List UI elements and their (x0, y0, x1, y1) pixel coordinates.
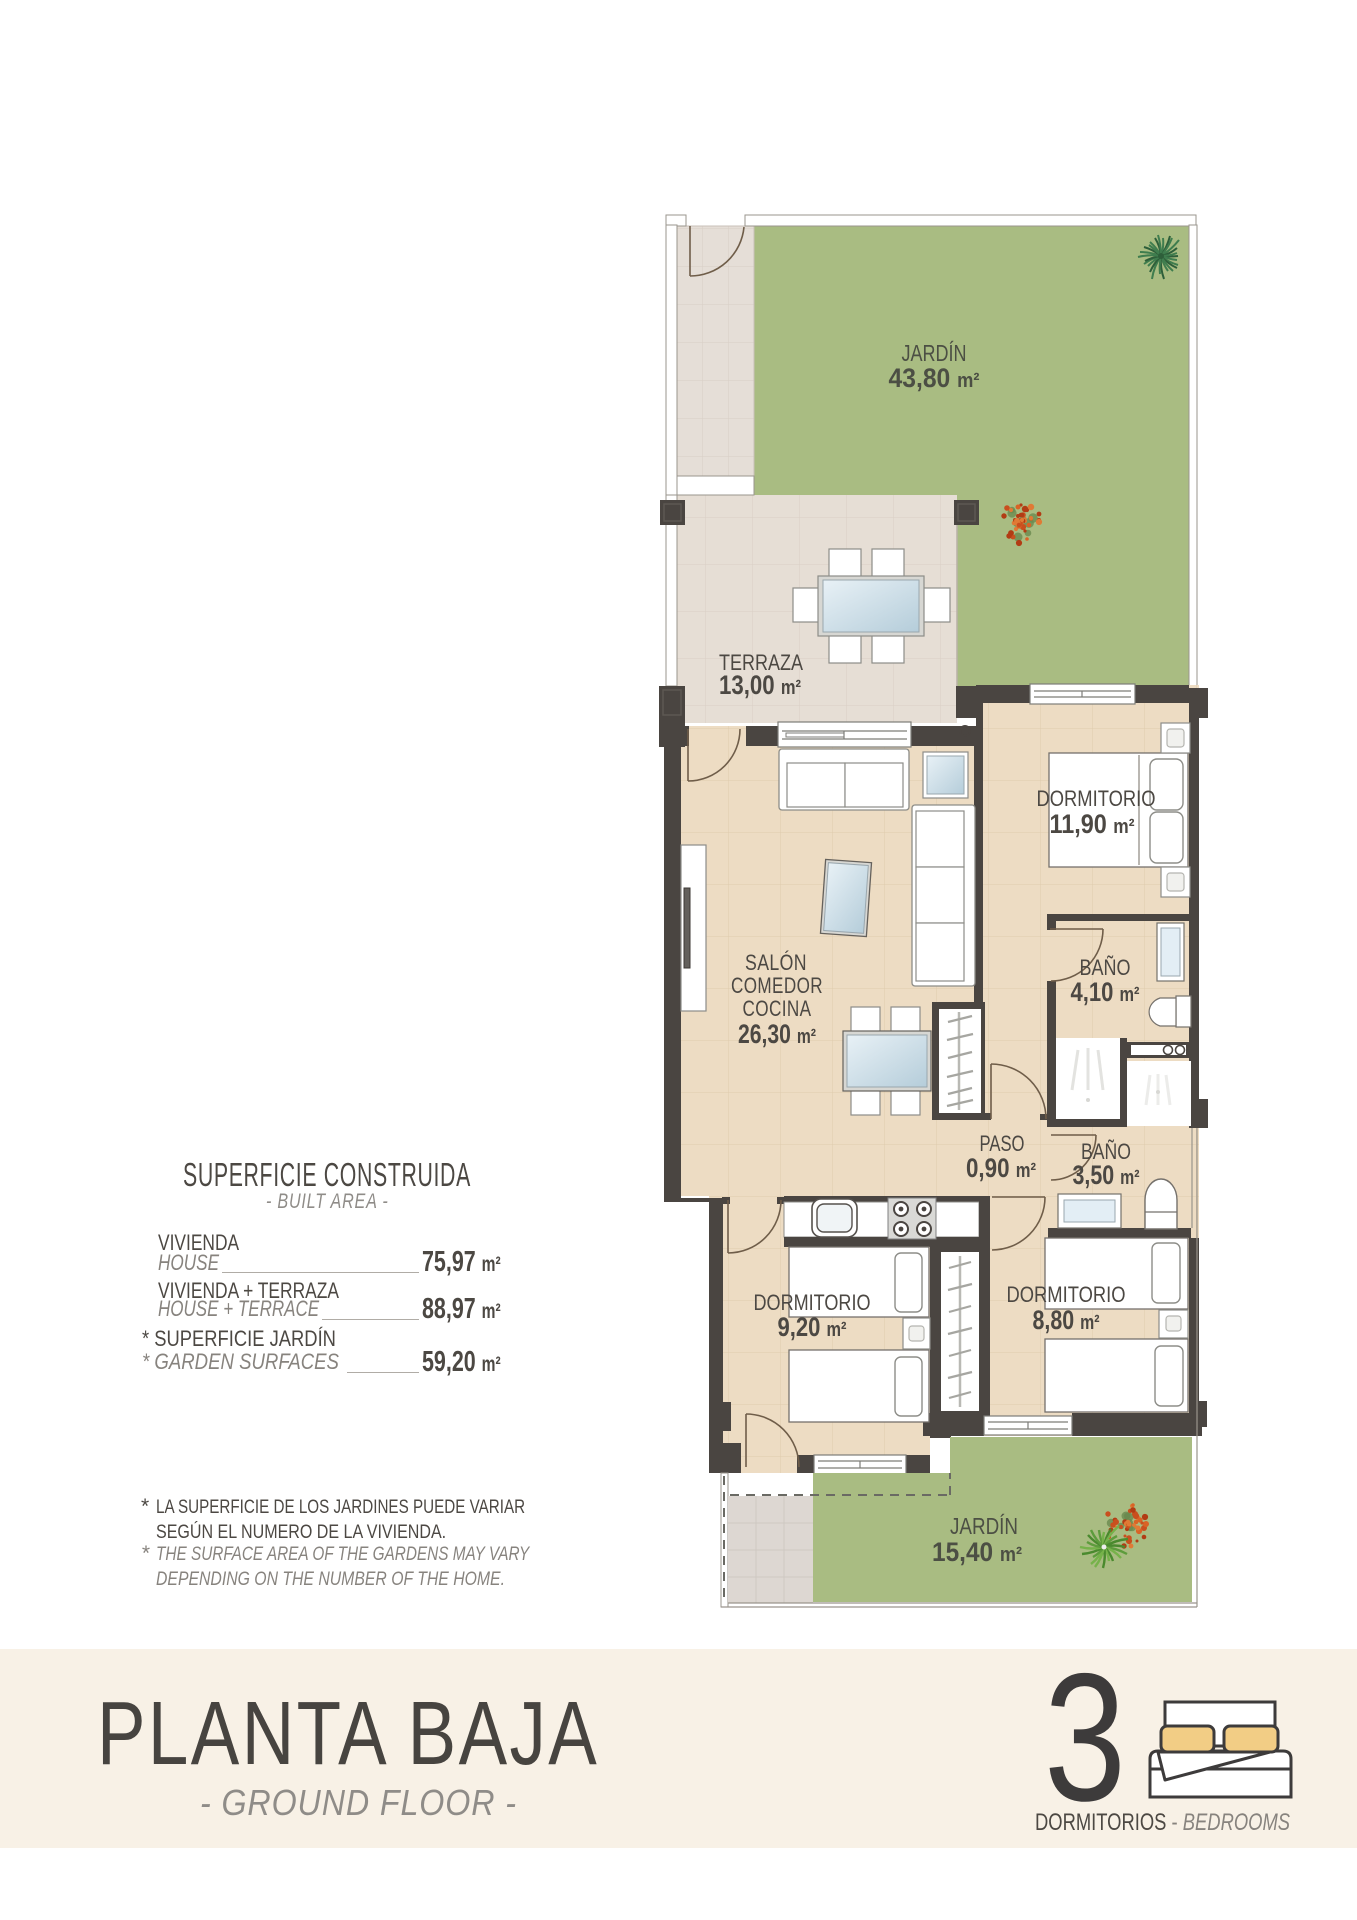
svg-text:DORMITORIO: DORMITORIO (1037, 786, 1156, 811)
svg-text:COMEDOR: COMEDOR (731, 973, 823, 998)
svg-text:SALÓN: SALÓN (745, 950, 807, 975)
svg-text:DORMITORIO: DORMITORIO (1007, 1282, 1126, 1307)
svg-text:JARDÍN: JARDÍN (950, 1513, 1018, 1539)
svg-text:COCINA: COCINA (743, 996, 812, 1021)
